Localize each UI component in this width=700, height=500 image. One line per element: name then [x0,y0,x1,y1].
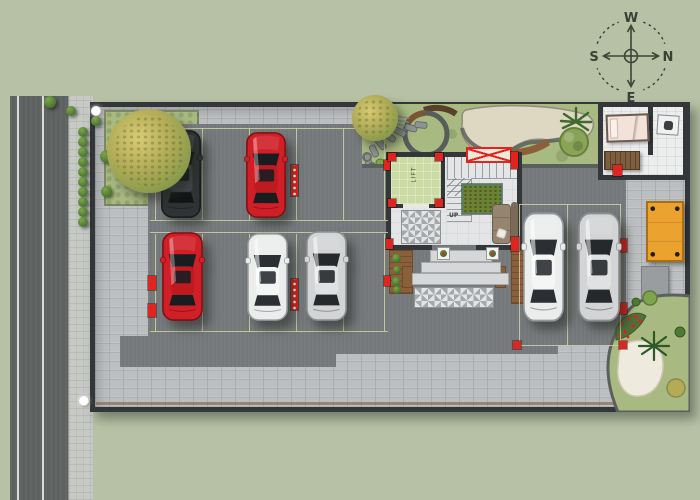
red-column-marker [613,165,622,176]
timber-deck [646,201,684,262]
red-column-marker [511,152,518,169]
entrance-walkway-tiles [414,287,494,308]
car-red [244,131,288,219]
red-column-marker [386,239,393,249]
car-white [245,232,290,322]
stairs-up-label: UP [449,212,458,219]
parking-stall-line [519,204,520,346]
parking-stall-line [343,128,344,220]
car-silver [304,230,349,322]
shrub [78,157,88,167]
street-light [91,106,101,116]
shrub [78,127,88,137]
parking-stall-line [519,345,621,346]
red-column-marker [619,341,627,349]
shrub [78,177,88,187]
driveway-apron-step [120,336,336,367]
potted-plant-left [437,247,450,260]
shrub [66,106,76,116]
shrub [78,187,88,197]
red-column-dotted [291,165,298,196]
round-shrub-large [560,128,588,156]
shrub [101,186,112,197]
room-bench [604,151,640,170]
car-top-view [304,230,349,322]
shrub [91,116,101,126]
parking-stall-line [384,128,385,220]
shrub [44,96,56,108]
red-column-dotted [291,279,298,310]
car-silver [576,211,622,323]
car-top-view [576,211,622,323]
lift-label: LIFT [411,152,418,198]
service-shaft-cutout [466,147,512,163]
bed-pillow [610,118,619,138]
street-light [79,396,89,406]
compass-north-label: N [663,50,674,65]
red-column-marker [384,276,390,286]
tree [107,109,191,193]
bed [606,113,650,142]
compass-south-label: S [589,50,598,65]
parking-stall-line [150,220,388,221]
red-column-marker [388,153,396,161]
entrance-step-2 [421,262,501,273]
lift-door-opening [403,204,429,208]
compass-east-label: E [627,91,636,106]
compass-arrows [604,26,659,87]
lobby-feature-tiles [401,210,441,244]
shrub [78,147,88,157]
shrub [78,207,88,217]
bed-blanket [620,115,650,140]
car-top-view [521,211,566,323]
entrance-step-3 [412,273,509,285]
red-column-marker [388,199,396,207]
red-column-marker [435,153,443,161]
red-column-marker [148,304,156,317]
parking-stall-line [519,204,621,205]
compass-west-label: W [624,11,638,26]
tree [352,95,398,141]
shrub [78,137,88,147]
car-white [521,211,566,323]
compass-rose-icon: W S N E [583,6,683,106]
red-column-marker [148,276,156,290]
shrub [78,167,88,177]
caretaker-room [598,102,688,180]
red-column-marker [511,237,519,251]
parking-stall-line [567,204,568,346]
red-column-marker [435,199,443,207]
street-road [10,96,68,500]
shrub [78,197,88,207]
road-edge-line [17,96,19,500]
car-top-view [160,231,205,322]
red-column-marker [384,160,390,170]
potted-plant-right [486,247,499,260]
road-center-line [42,96,44,500]
washbasin [656,114,679,135]
car-top-view [244,131,288,219]
red-column-marker [513,341,521,349]
car-top-view [245,232,290,322]
site-plan: LIFT UP [0,0,700,500]
parking-stall-line [150,331,388,332]
shrub [78,217,88,227]
car-red [160,231,205,322]
